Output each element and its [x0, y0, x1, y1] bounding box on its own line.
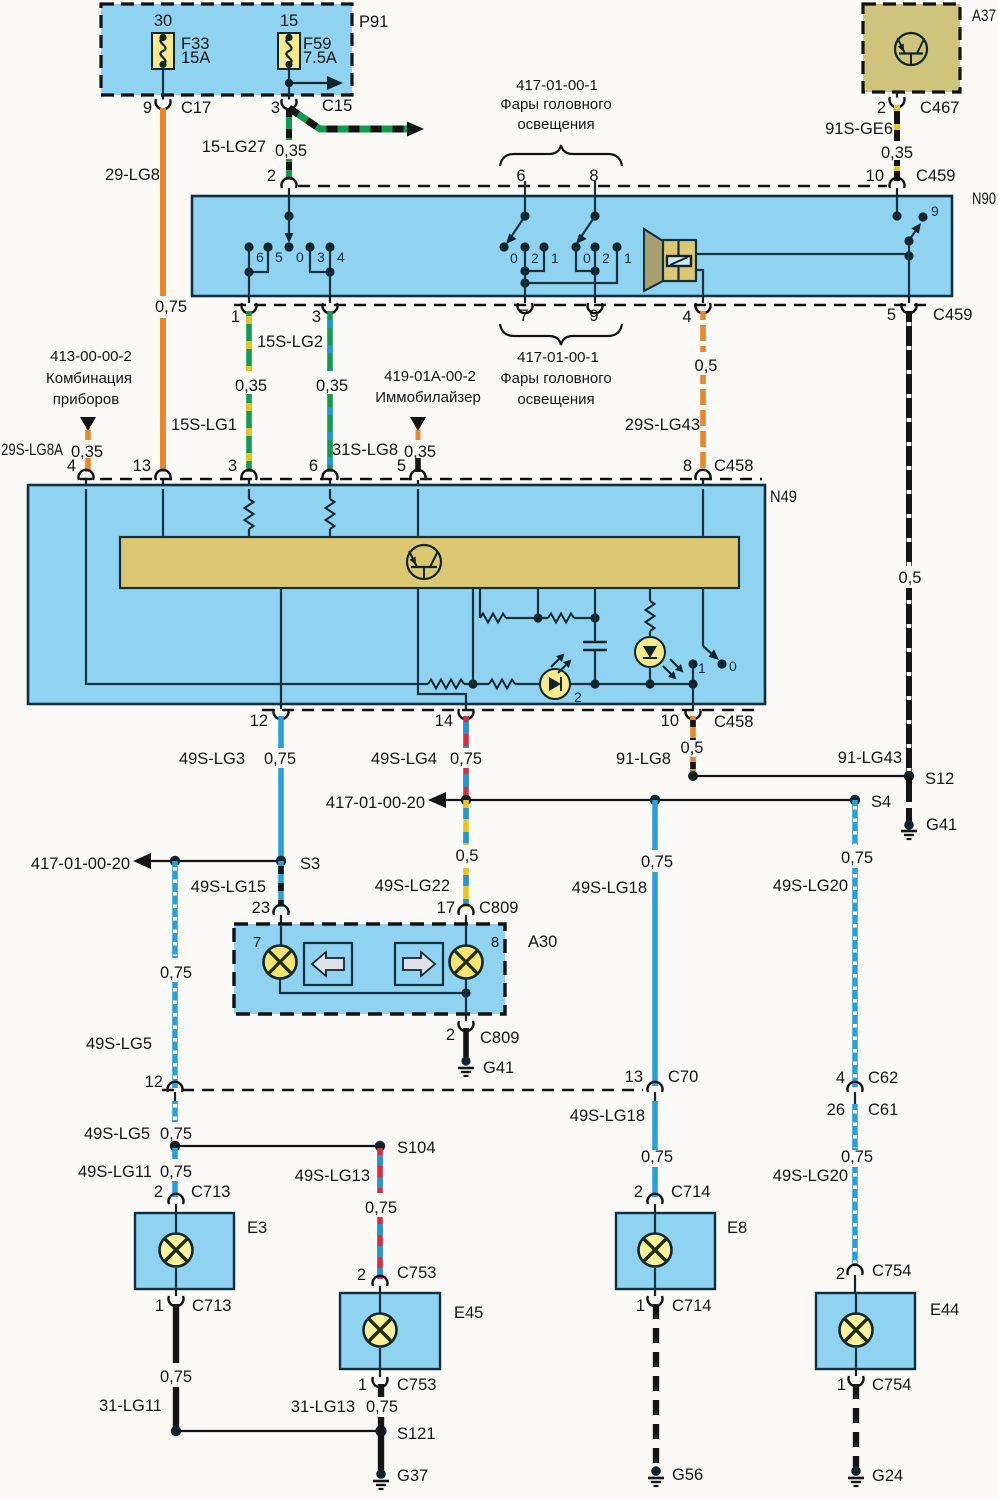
svg-text:N49: N49	[770, 488, 797, 506]
svg-text:2: 2	[634, 1183, 643, 1201]
svg-text:3: 3	[312, 308, 321, 326]
svg-text:15S-LG1: 15S-LG1	[171, 416, 237, 434]
svg-text:0,75: 0,75	[160, 1163, 192, 1181]
svg-text:29S-LG43: 29S-LG43	[625, 416, 700, 434]
svg-text:S121: S121	[397, 1425, 436, 1443]
svg-text:9: 9	[589, 307, 598, 325]
svg-text:0,35: 0,35	[881, 144, 913, 162]
svg-text:1: 1	[551, 250, 559, 266]
svg-text:9: 9	[143, 99, 152, 117]
svg-text:2: 2	[446, 1026, 455, 1044]
svg-text:C17: C17	[181, 99, 211, 117]
svg-text:C459: C459	[933, 306, 972, 324]
svg-text:G41: G41	[483, 1059, 514, 1077]
svg-text:31-LG11: 31-LG11	[99, 1397, 162, 1415]
svg-text:12: 12	[145, 1073, 163, 1091]
svg-text:C714: C714	[671, 1183, 710, 1201]
svg-text:C15: C15	[322, 97, 352, 115]
svg-text:E3: E3	[247, 1219, 267, 1237]
svg-text:4: 4	[682, 308, 691, 326]
svg-text:49S-LG5: 49S-LG5	[86, 1035, 152, 1053]
svg-text:S4: S4	[871, 793, 891, 811]
svg-text:419-01A-00-2: 419-01A-00-2	[384, 368, 476, 385]
svg-text:0,35: 0,35	[235, 377, 267, 395]
svg-text:1: 1	[358, 1376, 367, 1394]
svg-text:7: 7	[519, 307, 528, 325]
svg-text:8: 8	[491, 934, 499, 951]
svg-text:5: 5	[275, 249, 283, 265]
svg-text:0,75: 0,75	[841, 849, 873, 867]
svg-text:7: 7	[253, 934, 261, 951]
svg-text:12: 12	[250, 712, 268, 730]
svg-text:2: 2	[531, 250, 539, 266]
svg-text:1: 1	[837, 1376, 846, 1394]
svg-text:0,5: 0,5	[695, 357, 718, 375]
svg-text:0,75: 0,75	[366, 1398, 398, 1416]
svg-text:15: 15	[280, 12, 298, 30]
svg-text:0,75: 0,75	[264, 750, 296, 768]
svg-text:4: 4	[337, 249, 345, 265]
svg-text:29S-LG8A: 29S-LG8A	[1, 441, 63, 459]
svg-text:C467: C467	[920, 99, 959, 117]
svg-text:15A: 15A	[181, 49, 210, 67]
svg-text:15-LG27: 15-LG27	[202, 138, 266, 156]
svg-text:31S-LG8: 31S-LG8	[332, 441, 398, 459]
svg-text:49S-LG15: 49S-LG15	[191, 878, 266, 896]
svg-text:26: 26	[827, 1101, 845, 1119]
svg-text:29-LG8: 29-LG8	[105, 166, 160, 184]
svg-text:49S-LG13: 49S-LG13	[295, 1167, 370, 1185]
svg-text:0: 0	[510, 250, 518, 266]
svg-text:C62: C62	[868, 1069, 898, 1087]
svg-text:7.5A: 7.5A	[303, 49, 337, 67]
svg-text:91-LG43: 91-LG43	[838, 749, 902, 767]
svg-text:0: 0	[583, 250, 591, 266]
svg-text:P91: P91	[359, 13, 388, 31]
svg-text:0,75: 0,75	[160, 1125, 192, 1143]
svg-text:13: 13	[133, 457, 151, 475]
svg-text:0,5: 0,5	[681, 739, 704, 757]
svg-text:49S-LG18: 49S-LG18	[572, 879, 647, 897]
svg-text:C459: C459	[916, 167, 955, 185]
svg-text:23: 23	[252, 899, 270, 917]
svg-text:A37: A37	[972, 7, 996, 25]
svg-text:0,75: 0,75	[641, 853, 673, 871]
svg-text:C713: C713	[191, 1183, 230, 1201]
svg-text:2: 2	[602, 250, 610, 266]
svg-text:5: 5	[887, 306, 896, 324]
svg-text:N90: N90	[972, 190, 996, 208]
svg-text:3: 3	[228, 457, 237, 475]
svg-text:G37: G37	[397, 1467, 428, 1485]
svg-text:417-01-00-20: 417-01-00-20	[326, 794, 425, 812]
svg-text:0: 0	[296, 249, 304, 265]
svg-text:C70: C70	[668, 1068, 698, 1086]
svg-text:C754: C754	[872, 1262, 911, 1280]
svg-text:2: 2	[267, 167, 276, 185]
svg-text:5: 5	[397, 457, 406, 475]
svg-text:C458: C458	[714, 457, 753, 475]
svg-text:E44: E44	[930, 1301, 959, 1319]
svg-text:S104: S104	[397, 1139, 436, 1157]
svg-text:Фары головного: Фары головного	[500, 370, 612, 387]
svg-text:6: 6	[309, 457, 318, 475]
svg-text:приборов: приборов	[53, 391, 119, 408]
svg-text:417-01-00-1: 417-01-00-1	[517, 349, 599, 366]
svg-text:2: 2	[357, 1266, 366, 1284]
svg-text:31-LG13: 31-LG13	[291, 1398, 355, 1416]
svg-text:0,75: 0,75	[365, 1199, 397, 1217]
svg-text:Фары головного: Фары головного	[500, 96, 612, 113]
svg-text:G41: G41	[926, 816, 957, 834]
svg-text:49S-LG11: 49S-LG11	[78, 1163, 152, 1181]
svg-text:49S-LG20: 49S-LG20	[773, 1167, 848, 1185]
svg-text:C754: C754	[872, 1376, 911, 1394]
svg-text:417-01-00-20: 417-01-00-20	[31, 855, 130, 873]
svg-text:0,5: 0,5	[899, 569, 922, 587]
svg-text:49S-LG3: 49S-LG3	[179, 750, 245, 768]
svg-text:0,5: 0,5	[456, 847, 479, 865]
svg-text:91-LG8: 91-LG8	[616, 750, 671, 768]
svg-text:E45: E45	[454, 1304, 483, 1322]
svg-text:3: 3	[317, 249, 325, 265]
svg-text:49S-LG22: 49S-LG22	[375, 877, 450, 895]
svg-text:49S-LG18: 49S-LG18	[570, 1107, 645, 1125]
svg-text:49S-LG4: 49S-LG4	[371, 750, 437, 768]
svg-text:C753: C753	[397, 1376, 436, 1394]
svg-text:C714: C714	[672, 1297, 711, 1315]
svg-text:G56: G56	[672, 1466, 703, 1484]
svg-text:4: 4	[836, 1069, 845, 1087]
svg-text:C809: C809	[479, 899, 518, 917]
svg-text:6: 6	[256, 249, 264, 265]
svg-text:C458: C458	[714, 713, 753, 731]
svg-text:413-00-00-2: 413-00-00-2	[50, 348, 132, 365]
svg-text:A30: A30	[528, 933, 557, 951]
svg-text:S12: S12	[925, 770, 954, 788]
svg-text:Иммобилайзер: Иммобилайзер	[375, 389, 481, 406]
svg-text:0,75: 0,75	[155, 298, 187, 316]
svg-text:0,75: 0,75	[160, 964, 192, 982]
svg-text:91S-GE6: 91S-GE6	[825, 120, 893, 138]
svg-text:0,35: 0,35	[316, 377, 348, 395]
svg-text:1: 1	[698, 660, 706, 676]
svg-text:10: 10	[661, 712, 679, 730]
svg-text:17: 17	[437, 899, 455, 917]
svg-text:10: 10	[866, 167, 884, 185]
svg-text:освещения: освещения	[517, 391, 594, 408]
svg-text:3: 3	[271, 99, 280, 117]
svg-text:0,35: 0,35	[275, 142, 307, 160]
svg-text:1: 1	[624, 250, 632, 266]
svg-text:15S-LG2: 15S-LG2	[257, 333, 323, 351]
svg-text:1: 1	[231, 308, 240, 326]
svg-text:30: 30	[154, 12, 172, 30]
svg-text:8: 8	[683, 457, 692, 475]
svg-text:4: 4	[67, 457, 76, 475]
svg-text:C61: C61	[868, 1101, 898, 1119]
svg-text:0,35: 0,35	[404, 443, 436, 461]
svg-text:2: 2	[154, 1183, 163, 1201]
svg-text:49S-LG5: 49S-LG5	[84, 1125, 150, 1143]
svg-text:0: 0	[729, 658, 737, 674]
svg-text:2: 2	[574, 689, 582, 705]
svg-text:2: 2	[836, 1265, 845, 1283]
svg-text:1: 1	[636, 1297, 645, 1315]
svg-text:9: 9	[931, 203, 939, 219]
svg-text:0,75: 0,75	[641, 1148, 673, 1166]
svg-text:14: 14	[435, 712, 453, 730]
svg-text:0,75: 0,75	[160, 1368, 192, 1386]
svg-text:0,75: 0,75	[841, 1148, 873, 1166]
svg-text:Комбинация: Комбинация	[46, 370, 132, 387]
svg-text:0,75: 0,75	[450, 750, 482, 768]
svg-text:освещения: освещения	[517, 116, 594, 133]
svg-text:13: 13	[625, 1068, 643, 1086]
svg-text:1: 1	[155, 1297, 164, 1315]
svg-text:49S-LG20: 49S-LG20	[773, 877, 848, 895]
svg-text:C753: C753	[397, 1264, 436, 1282]
svg-text:S3: S3	[300, 855, 320, 873]
svg-text:G24: G24	[872, 1467, 903, 1485]
svg-text:C809: C809	[480, 1029, 519, 1047]
svg-text:E8: E8	[727, 1219, 747, 1237]
svg-text:417-01-00-1: 417-01-00-1	[516, 77, 598, 94]
svg-text:2: 2	[877, 99, 886, 117]
svg-text:C713: C713	[192, 1297, 231, 1315]
